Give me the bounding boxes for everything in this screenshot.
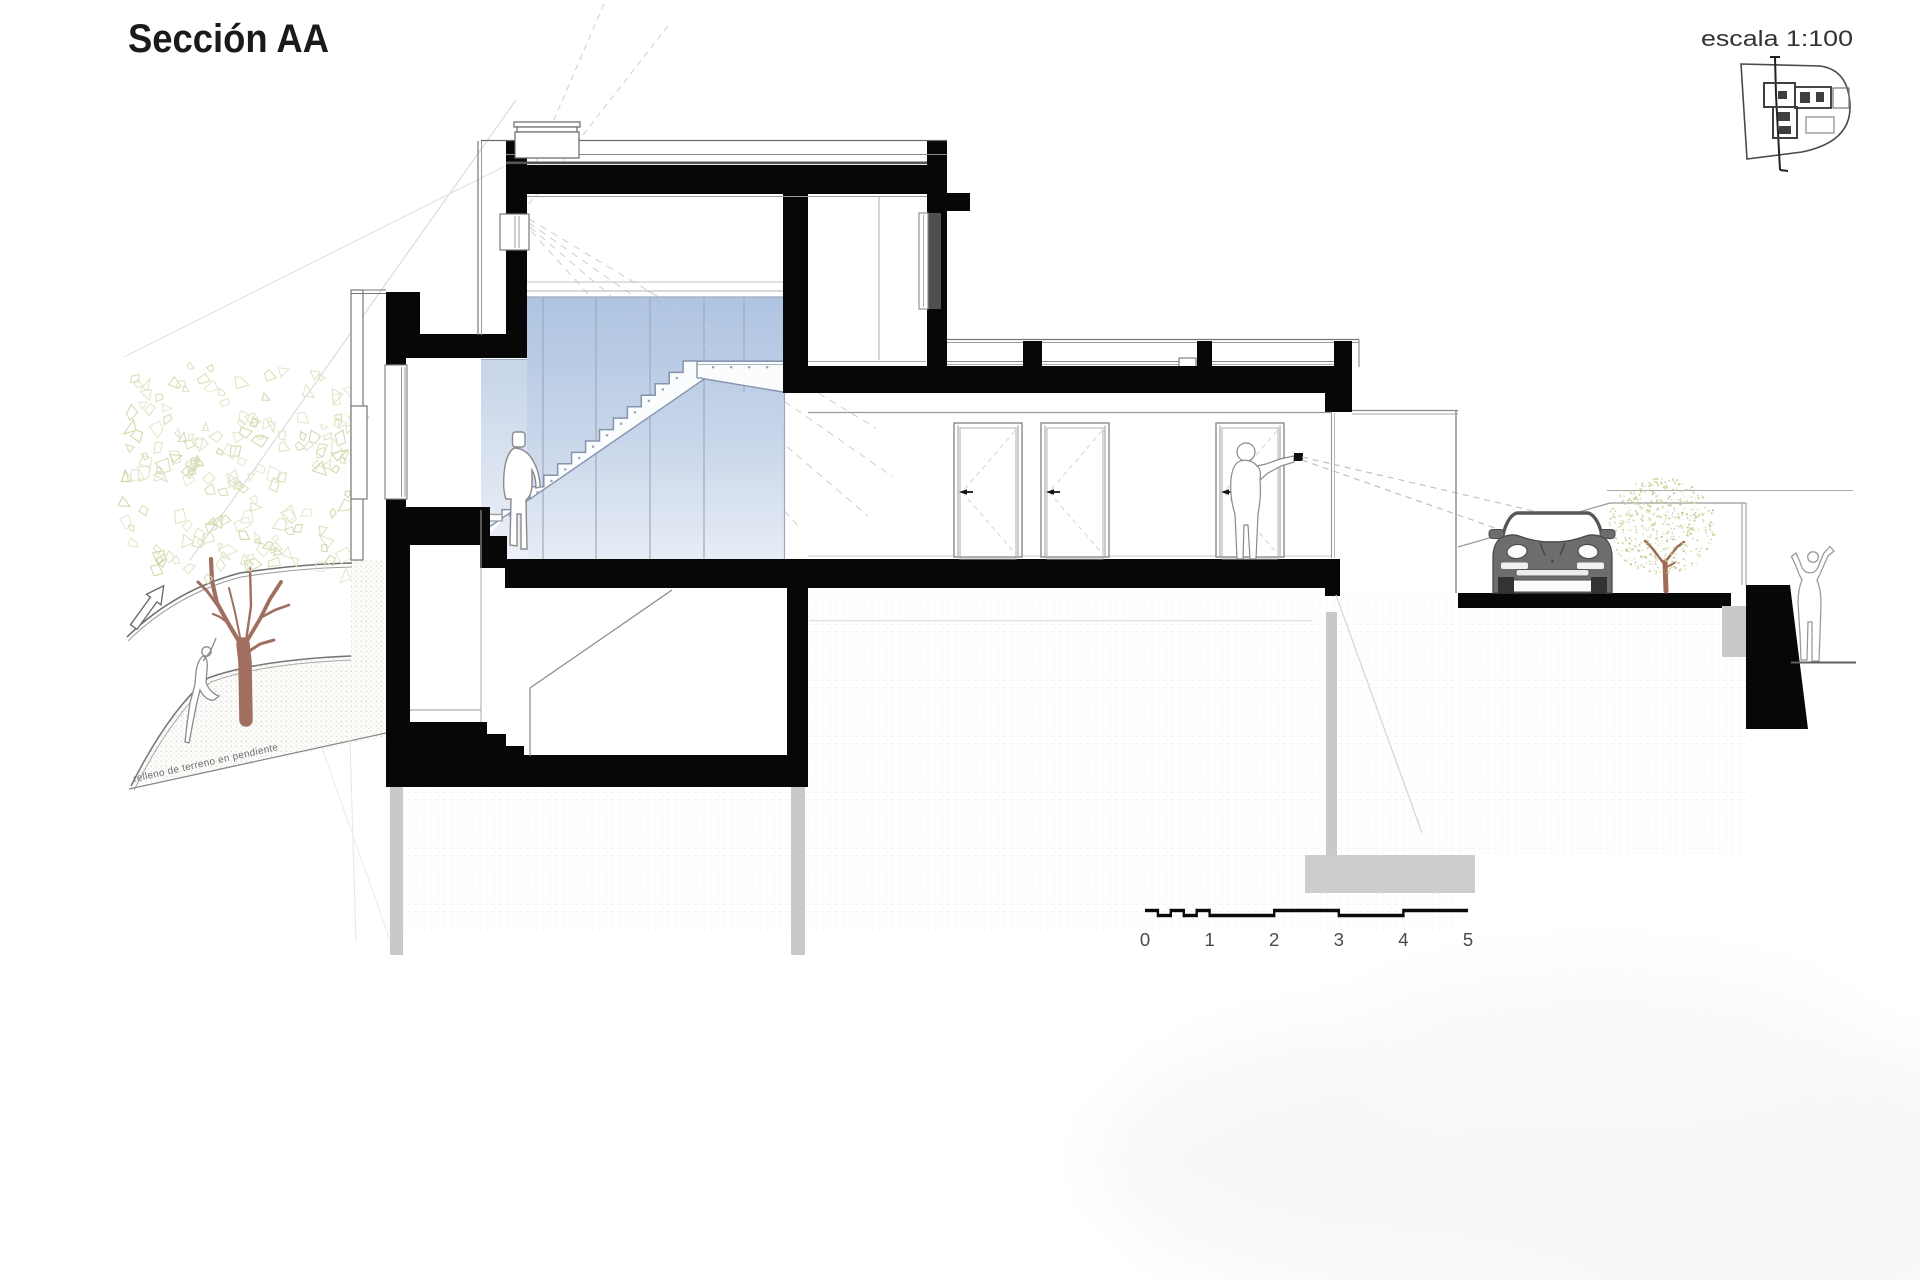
svg-text:1: 1 [1204,929,1214,950]
svg-text:5: 5 [1463,929,1473,950]
svg-text:2: 2 [1269,929,1279,950]
svg-text:escala 1:100: escala 1:100 [1701,26,1853,51]
svg-text:3: 3 [1334,929,1344,950]
svg-text:0: 0 [1140,929,1150,950]
svg-text:Sección AA: Sección AA [128,17,329,61]
svg-text:4: 4 [1398,929,1408,950]
